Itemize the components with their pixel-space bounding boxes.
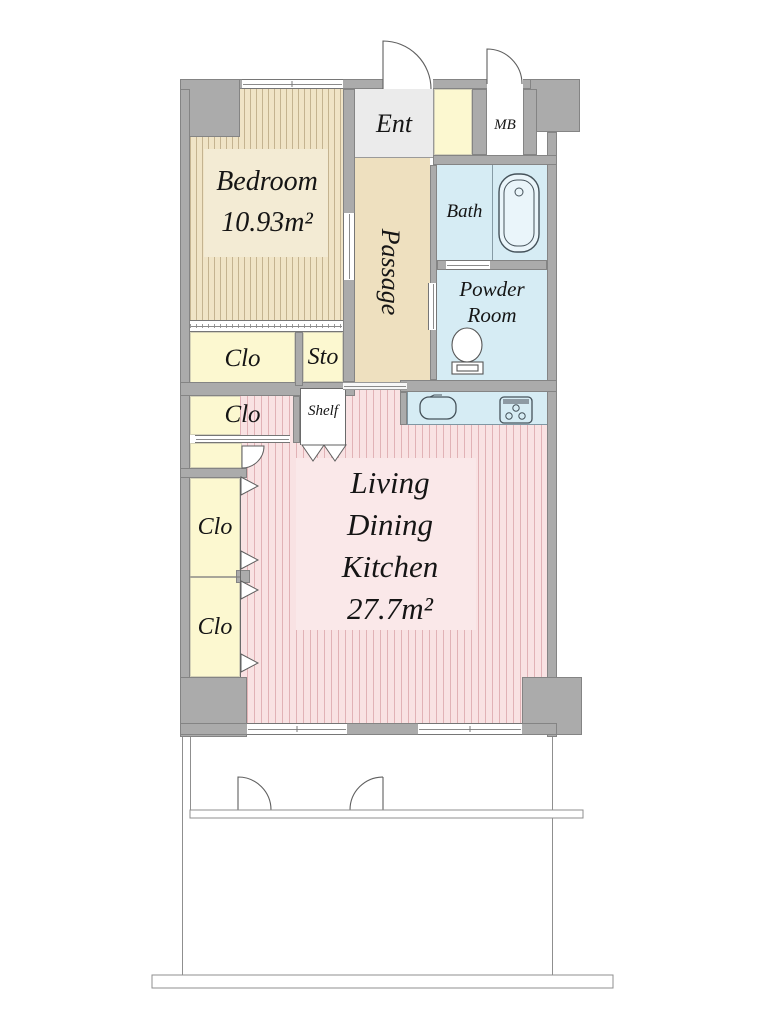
entrance-door-gap	[383, 79, 433, 89]
balcony-door-swing-left-icon	[238, 777, 271, 810]
kitchen-counter	[407, 392, 547, 425]
balcony-railing	[190, 810, 583, 818]
ldk-window-right	[418, 723, 522, 735]
room-entrance	[355, 89, 433, 158]
ldk-label-backdrop	[296, 458, 476, 630]
room-bath	[437, 165, 547, 260]
room-closet-top-1	[190, 332, 295, 386]
floor-plan-canvas: Bedroom 10.93m² Ent MB Bath Powder Room …	[0, 0, 768, 1024]
room-powder	[437, 270, 547, 380]
room-meter-box	[487, 89, 523, 155]
balcony-door-swing-right-icon	[350, 777, 383, 810]
wall-block-top-right	[530, 79, 580, 132]
bedroom-top-window	[242, 79, 343, 89]
room-closet-left-2	[190, 577, 240, 677]
wall-closet-track-post	[236, 570, 250, 583]
wall-clo2-shelf	[293, 396, 300, 443]
bedroom-label-backdrop	[204, 149, 328, 257]
bedroom-sliding-door	[343, 213, 355, 280]
bath-partition-line	[492, 165, 493, 260]
wall-mb-left	[472, 89, 487, 155]
wall-under-small-cell	[180, 468, 247, 478]
wall-clo-sto-divider	[295, 332, 303, 386]
room-closet-left-1	[190, 478, 240, 577]
ldk-window-left	[247, 723, 347, 735]
bath-door	[446, 260, 490, 270]
bedroom-closet-sliding-doors	[190, 320, 343, 332]
wall-under-mb	[433, 155, 557, 165]
mb-door-gap	[487, 79, 523, 89]
wall-passage-wet	[430, 165, 437, 380]
closet2-sliding-door	[195, 435, 290, 443]
wall-powder-bottom	[400, 380, 557, 392]
balcony-outline	[152, 737, 613, 988]
room-passage	[355, 158, 430, 382]
wall-right	[547, 132, 557, 737]
wall-mb-right	[523, 89, 537, 155]
passage-ldk-threshold	[343, 382, 407, 390]
wall-kitchen-spur	[400, 392, 407, 425]
ground-edge-bar	[152, 975, 613, 988]
small-closet-cell	[190, 443, 242, 468]
powder-door	[428, 283, 437, 330]
wall-left	[180, 89, 190, 737]
shelf-box	[300, 388, 346, 445]
entrance-cabinet	[433, 89, 472, 155]
room-storage	[303, 332, 343, 382]
